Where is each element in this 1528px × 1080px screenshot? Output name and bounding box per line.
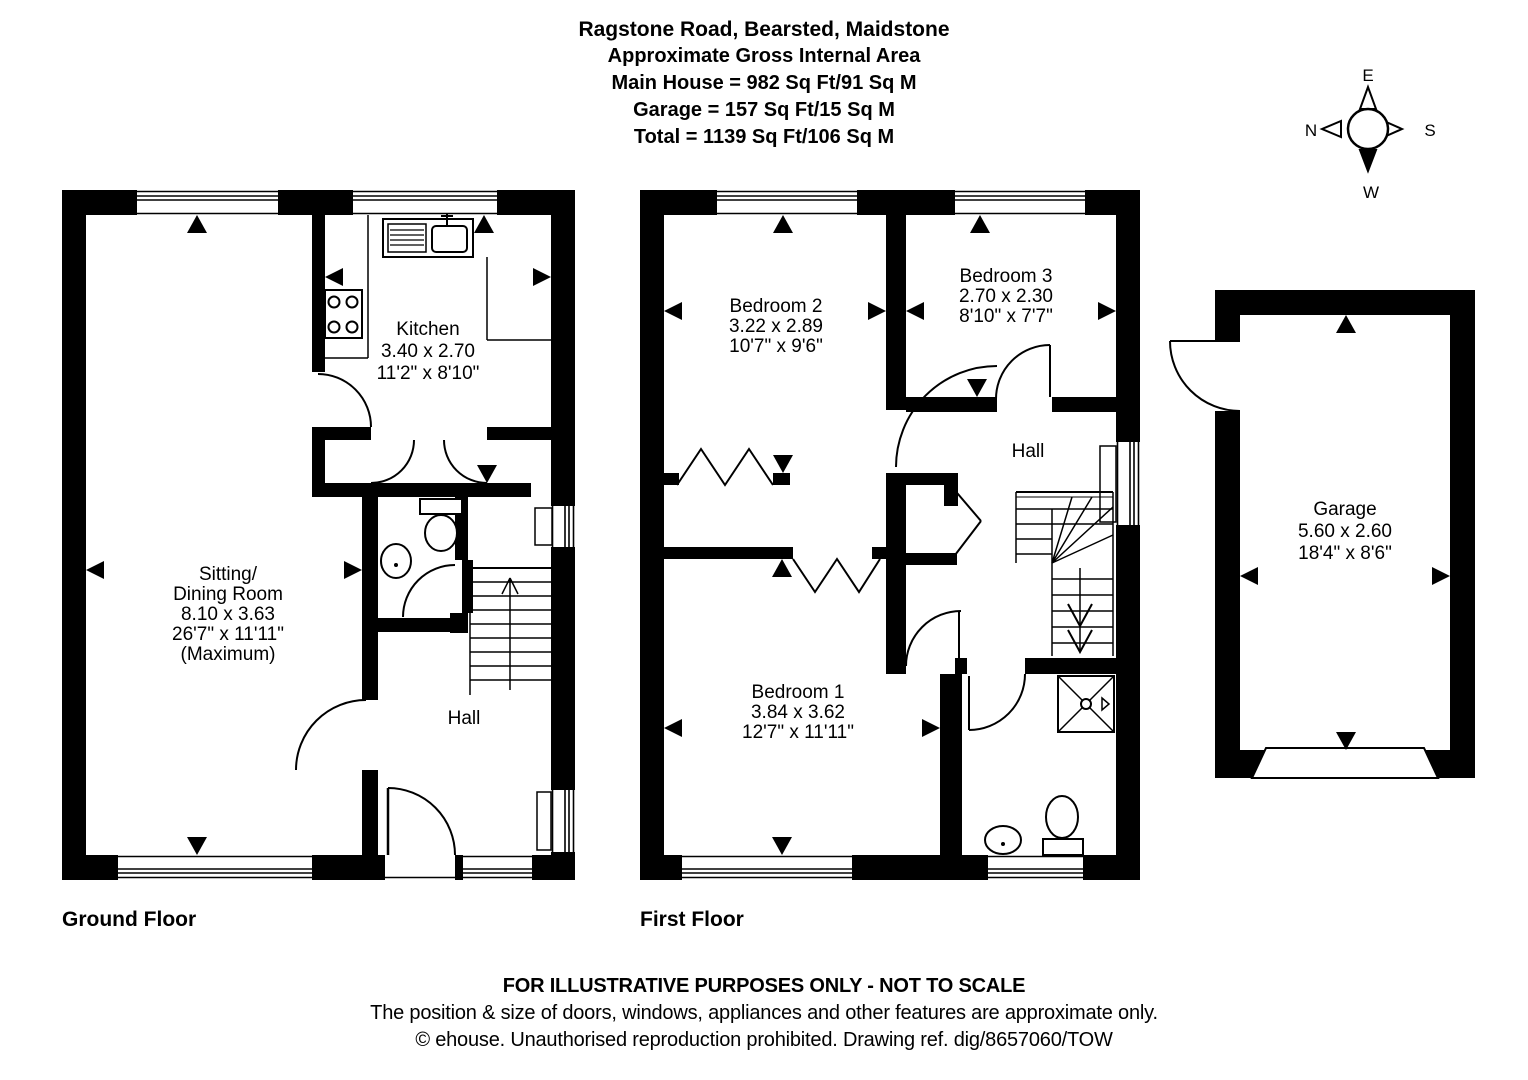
bedroom3-metric: 2.70 x 2.30 [959,287,1053,307]
bedroom1-metric: 3.84 x 3.62 [742,703,854,723]
garage-name: Garage [1298,499,1392,521]
ground-hall-name: Hall [448,709,481,729]
bedroom1-name: Bedroom 1 [742,683,854,703]
garage-label: Garage 5.60 x 2.60 18'4" x 8'6" [1298,499,1392,565]
first-floor-windows [677,190,1140,880]
kitchen-imperial: 11'2" x 8'10" [377,363,480,385]
garage-side-door [1170,341,1240,411]
garage-imperial: 18'4" x 8'6" [1298,543,1392,565]
sitting-name2: Dining Room [172,585,284,605]
bathroom-toilet [1043,796,1083,855]
bedroom3-name: Bedroom 3 [959,267,1053,287]
sitting-dining-label: Sitting/ Dining Room 8.10 x 3.63 26'7" x… [172,565,284,665]
footer-disclaimer: FOR ILLUSTRATIVE PURPOSES ONLY - NOT TO … [0,973,1528,1000]
bathroom-shower [1058,676,1114,732]
compass-east-label: E [1362,66,1373,85]
bedroom2-label: Bedroom 2 3.22 x 2.89 10'7" x 9'6" [729,297,823,357]
bedroom3-label: Bedroom 3 2.70 x 2.30 8'10" x 7'7" [959,267,1053,327]
ground-floor-walls [62,190,575,880]
bedroom1-imperial: 12'7" x 11'11" [742,723,854,743]
sitting-name: Sitting/ [172,565,284,585]
compass-rose-icon: E N S W [1305,66,1436,202]
kitchen-sink [383,214,473,257]
bedroom1-label: Bedroom 1 3.84 x 3.62 12'7" x 11'11" [742,683,854,743]
bedroom2-name: Bedroom 2 [729,297,823,317]
floorplan-page: Ragstone Road, Bearsted, Maidstone Appro… [0,0,1528,1080]
kitchen-name: Kitchen [377,319,480,341]
first-floor-label: First Floor [640,908,744,932]
bedroom3-imperial: 8'10" x 7'7" [959,307,1053,327]
bedroom2-imperial: 10'7" x 9'6" [729,337,823,357]
sitting-metric: 8.10 x 3.63 [172,605,284,625]
footer: FOR ILLUSTRATIVE PURPOSES ONLY - NOT TO … [0,973,1528,1054]
kitchen-metric: 3.40 x 2.70 [377,341,480,363]
ground-floor-stairs [470,568,551,695]
garage-metric: 5.60 x 2.60 [1298,521,1392,543]
compass-west-label: W [1363,183,1379,202]
wc-basin [381,544,411,578]
first-floor-stairs [1016,492,1113,656]
first-hall-name: Hall [1012,442,1045,462]
kitchen-hob [325,290,362,338]
garage-door [1252,748,1438,778]
ground-floor-plan [62,190,575,880]
bedroom2-metric: 3.22 x 2.89 [729,317,823,337]
kitchen-label: Kitchen 3.40 x 2.70 11'2" x 8'10" [377,319,480,385]
sitting-imperial: 26'7" x 11'11" [172,625,284,645]
first-hall-label: Hall [1012,442,1045,462]
front-door [385,788,455,880]
bathroom-basin [985,826,1021,854]
compass-south-label: S [1424,121,1435,140]
first-floor-plan [640,190,1140,880]
compass-north-label: N [1305,121,1317,140]
sitting-note: (Maximum) [172,645,284,665]
first-floor-walls [640,190,1140,880]
ground-floor-label: Ground Floor [62,908,196,932]
footer-copyright: © ehouse. Unauthorised reproduction proh… [0,1027,1528,1054]
ground-hall-label: Hall [448,709,481,729]
footer-note: The position & size of doors, windows, a… [0,1000,1528,1027]
